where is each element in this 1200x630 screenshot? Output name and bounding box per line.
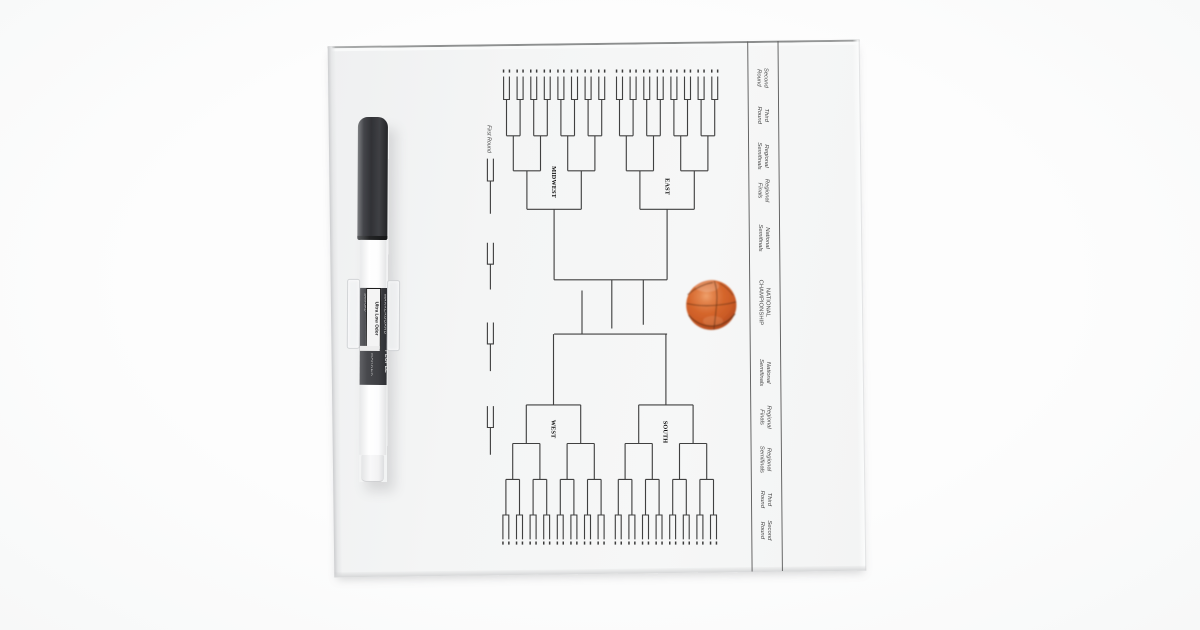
svg-text:EAST: EAST xyxy=(664,178,671,196)
svg-text:SOUTH: SOUTH xyxy=(662,421,669,444)
svg-text:SecondRound: SecondRound xyxy=(756,68,769,89)
svg-text:ThirdRound: ThirdRound xyxy=(756,107,769,125)
svg-text:NationalSemifinals: NationalSemifinals xyxy=(758,359,771,386)
svg-text:NATIONALCHAMPIONSHIP: NATIONALCHAMPIONSHIP xyxy=(757,280,770,326)
svg-text:ThirdRound: ThirdRound xyxy=(759,491,772,509)
svg-text:MIDWEST: MIDWEST xyxy=(550,166,557,199)
svg-text:RegionalSemifinals: RegionalSemifinals xyxy=(759,446,772,473)
svg-text:Ultra Low Odor: Ultra Low Odor xyxy=(374,302,379,336)
svg-text:PEOPLE: PEOPLE xyxy=(383,350,386,373)
svg-text:MARKERBOARD: MARKERBOARD xyxy=(383,294,386,335)
svg-text:RegionalFinals: RegionalFinals xyxy=(758,405,771,429)
svg-text:MARKER: MARKER xyxy=(369,353,373,377)
svg-text:RegionalSemifinals: RegionalSemifinals xyxy=(756,142,769,169)
svg-text:SecondRound: SecondRound xyxy=(759,520,772,541)
svg-text:SANFORD: SANFORD xyxy=(363,293,366,312)
svg-text:NationalSemifinals: NationalSemifinals xyxy=(757,224,770,251)
svg-text:WEST: WEST xyxy=(550,420,557,439)
svg-text:First Round: First Round xyxy=(485,125,491,154)
svg-text:RegionalFinals: RegionalFinals xyxy=(756,179,769,203)
